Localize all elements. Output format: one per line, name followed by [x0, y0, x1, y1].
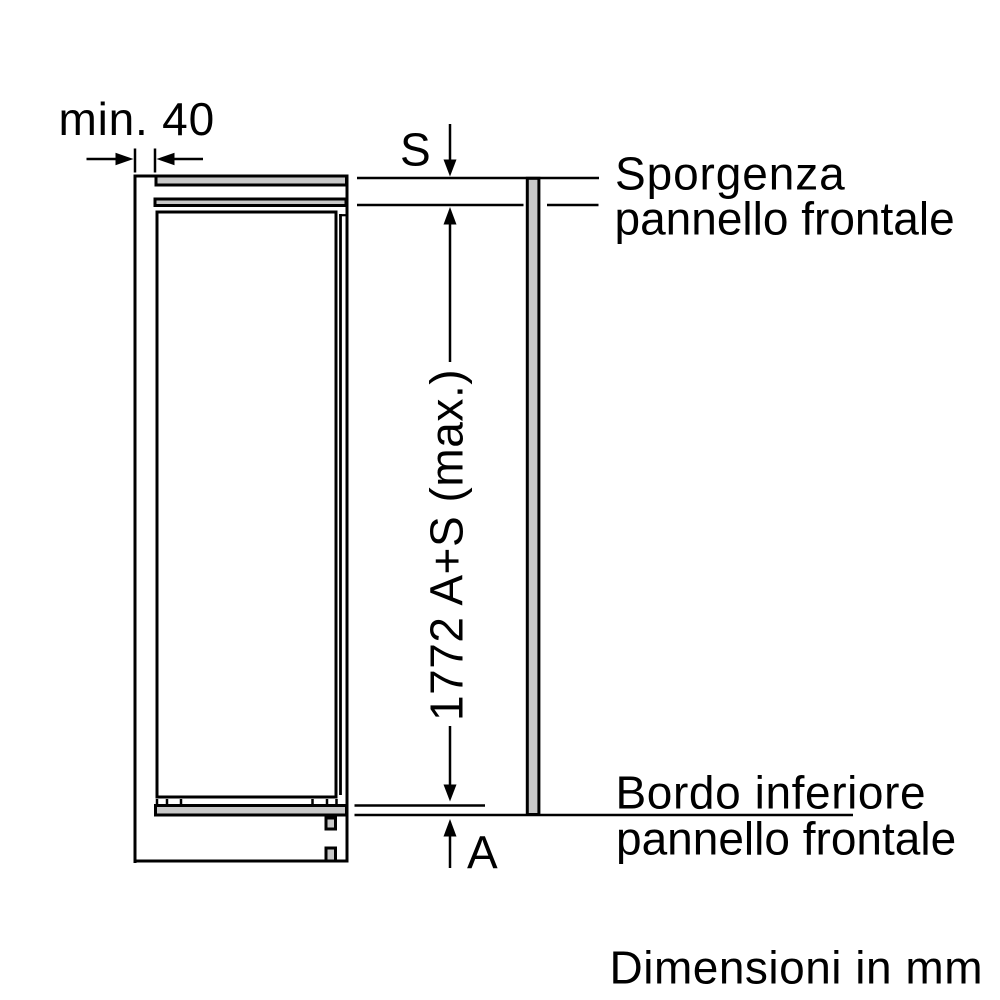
- svg-text:pannello frontale: pannello frontale: [616, 813, 956, 865]
- svg-text:A: A: [467, 827, 498, 879]
- svg-text:Dimensioni in mm: Dimensioni in mm: [610, 941, 984, 993]
- svg-text:min. 40: min. 40: [59, 93, 215, 145]
- svg-text:S: S: [400, 124, 431, 176]
- svg-text:pannello frontale: pannello frontale: [615, 193, 955, 245]
- svg-text:1772 A+S (max.): 1772 A+S (max.): [420, 369, 472, 721]
- svg-text:Bordo inferiore: Bordo inferiore: [616, 767, 927, 819]
- svg-text:Sporgenza: Sporgenza: [615, 147, 846, 199]
